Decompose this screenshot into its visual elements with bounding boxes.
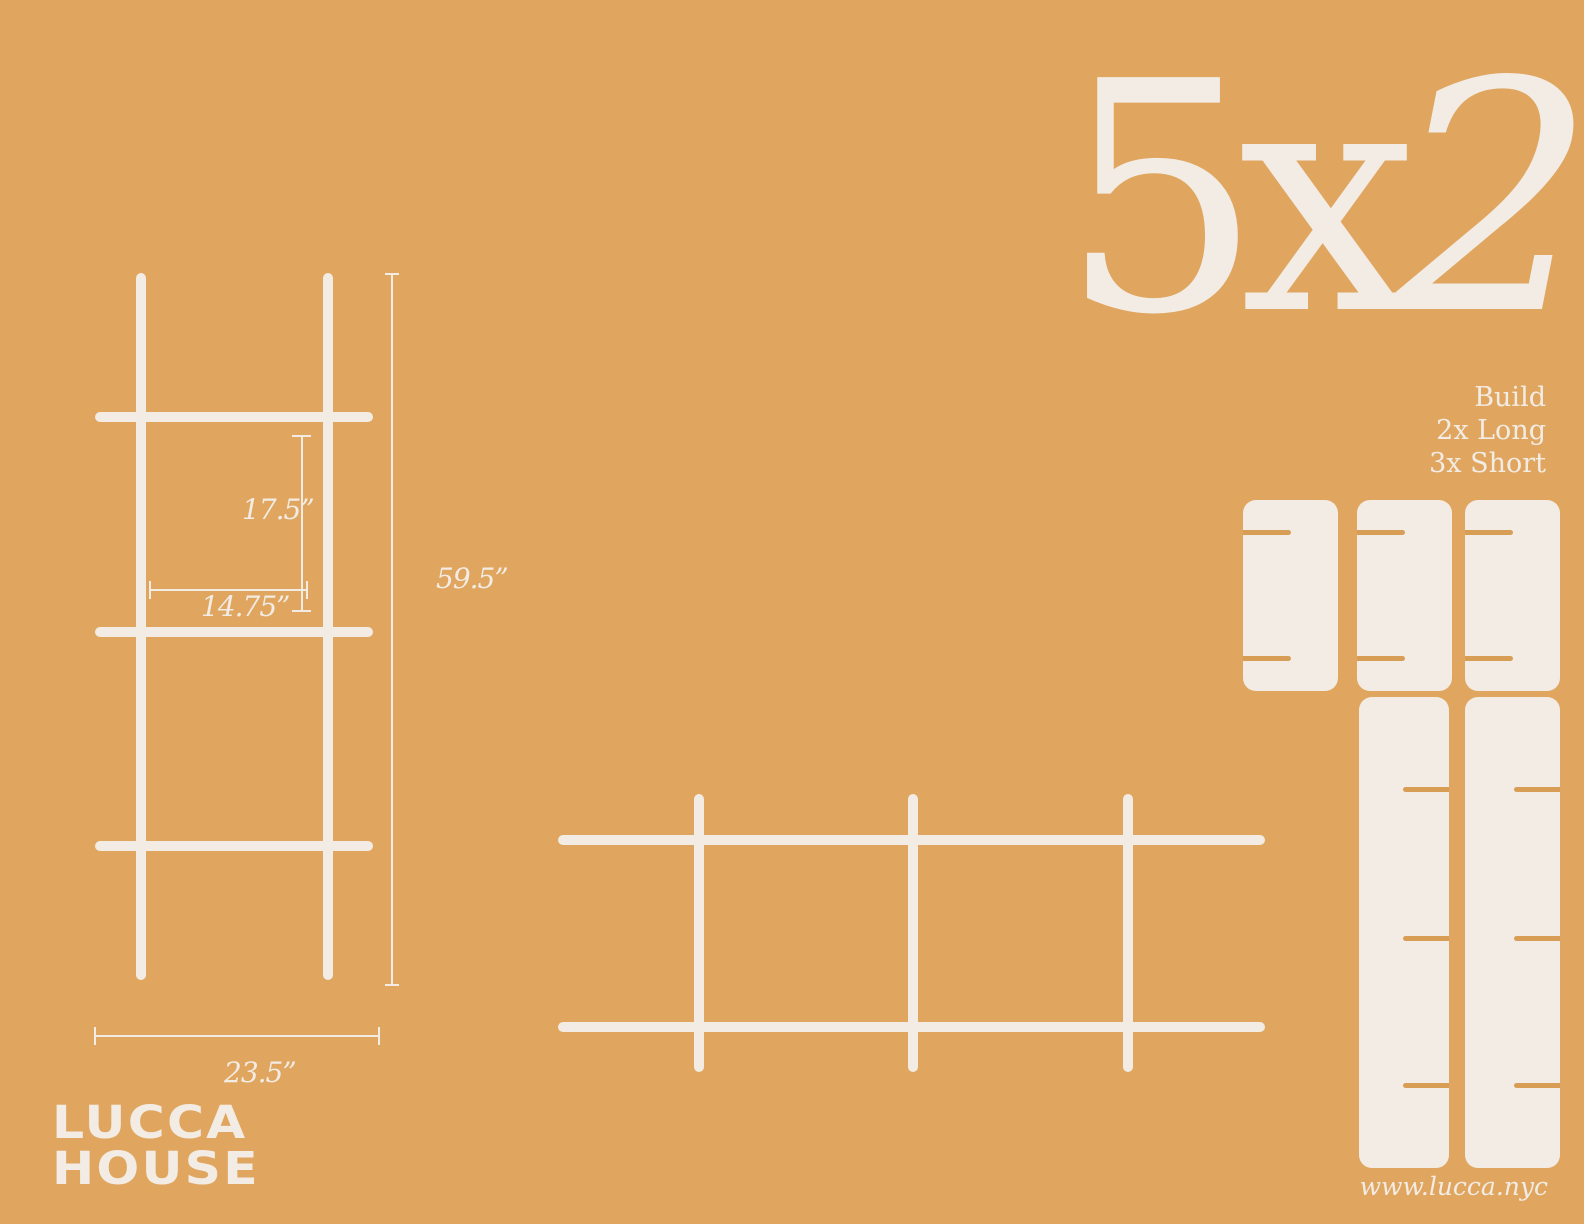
dim-opening-height-cap-bottom [292, 610, 311, 612]
website-url: www.lucca.nyc [1360, 1172, 1548, 1201]
front-top-rung-bar [95, 412, 373, 422]
build-note-line-3: 3x Short [1429, 448, 1546, 481]
front-middle-rung-bar [95, 627, 373, 637]
dim-opening-height-cap-top [292, 435, 311, 437]
short-panel-3-slot-top [1465, 530, 1513, 535]
short-panel-2-slot-bottom [1357, 656, 1405, 661]
logo-line-house: HOUSE [52, 1146, 260, 1192]
short-panel-1-slot-top [1243, 530, 1291, 535]
front-bottom-rung-bar [95, 841, 373, 851]
long-panel-1 [1359, 697, 1449, 1168]
dim-opening-height-label: 17.5” [242, 496, 314, 524]
title-char-2: 2 [1394, 14, 1572, 384]
build-note: Build 2x Long 3x Short [1429, 382, 1546, 481]
long-panel-2-slot-middle [1514, 936, 1560, 941]
side-cross-bar-3 [1123, 794, 1133, 1072]
dim-total-width-cap-left [94, 1027, 96, 1045]
long-panel-1-slot-bottom [1403, 1083, 1449, 1088]
product-title: 5x2 [1060, 40, 1572, 358]
build-note-line-2: 2x Long [1429, 415, 1546, 448]
dim-total-height-cap-bottom [385, 984, 399, 986]
title-char-5: 5 [1060, 14, 1238, 384]
short-panel-1 [1243, 500, 1338, 691]
dim-total-height-line [391, 274, 393, 985]
poster: 17.5” 14.75” 59.5” 23.5” [0, 0, 1584, 1224]
long-panel-1-slot-top [1403, 787, 1449, 792]
lucca-house-logo: LUCCA HOUSE [52, 1100, 260, 1193]
long-panel-1-slot-middle [1403, 936, 1449, 941]
logo-line-lucca: LUCCA [52, 1100, 260, 1146]
dim-opening-width-cap-left [149, 581, 151, 599]
short-panel-2 [1357, 500, 1452, 691]
short-panel-3 [1465, 500, 1560, 691]
title-char-x: x [1238, 14, 1393, 384]
dim-total-height-label: 59.5” [436, 565, 508, 593]
dim-total-height-cap-top [385, 273, 399, 275]
dim-opening-width-label: 14.75” [201, 593, 289, 621]
build-note-line-1: Build [1429, 382, 1546, 415]
side-cross-bar-2 [908, 794, 918, 1072]
short-panel-1-slot-bottom [1243, 656, 1291, 661]
dim-total-width-line [95, 1035, 380, 1037]
long-panel-2 [1465, 697, 1560, 1168]
long-panel-2-slot-top [1514, 787, 1560, 792]
short-panel-2-slot-top [1357, 530, 1405, 535]
dim-opening-width-cap-right [306, 581, 308, 599]
short-panel-3-slot-bottom [1465, 656, 1513, 661]
dim-total-width-label: 23.5” [224, 1059, 296, 1087]
dim-total-width-cap-right [378, 1027, 380, 1045]
long-panel-2-slot-bottom [1514, 1083, 1560, 1088]
side-cross-bar-1 [694, 794, 704, 1072]
